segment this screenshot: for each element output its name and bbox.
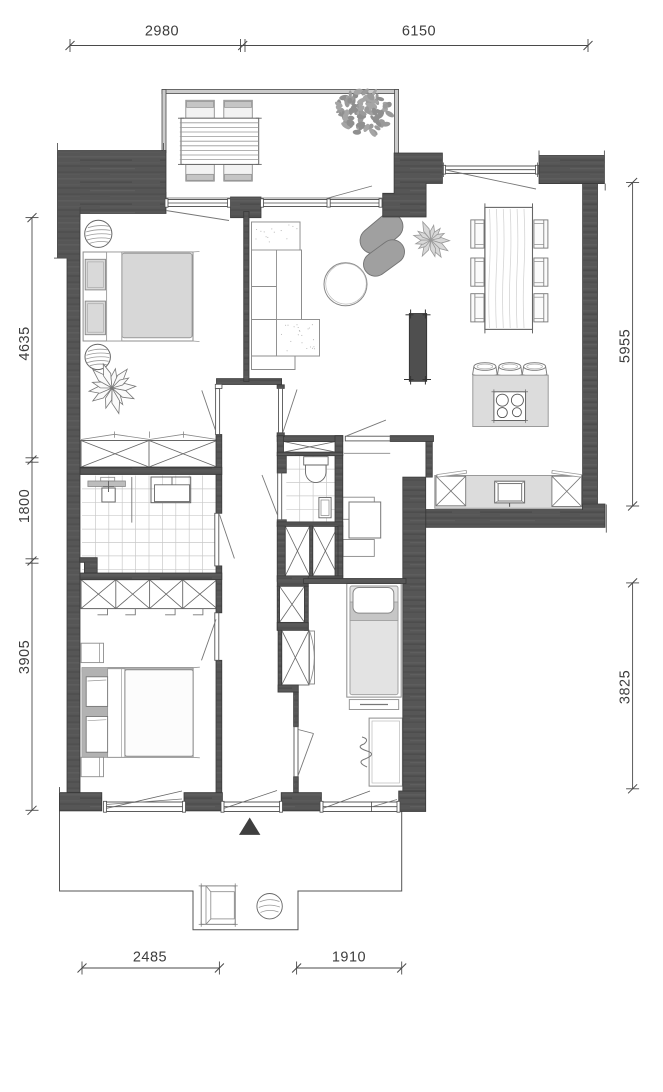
svg-text:2485: 2485 <box>133 950 167 966</box>
svg-text:3905: 3905 <box>17 640 33 674</box>
svg-text:6150: 6150 <box>402 24 436 40</box>
svg-text:1910: 1910 <box>332 950 366 966</box>
svg-text:4635: 4635 <box>17 326 33 360</box>
svg-text:5955: 5955 <box>617 329 633 363</box>
svg-text:1800: 1800 <box>17 489 33 523</box>
svg-text:2980: 2980 <box>145 24 179 40</box>
svg-text:3825: 3825 <box>617 670 633 704</box>
